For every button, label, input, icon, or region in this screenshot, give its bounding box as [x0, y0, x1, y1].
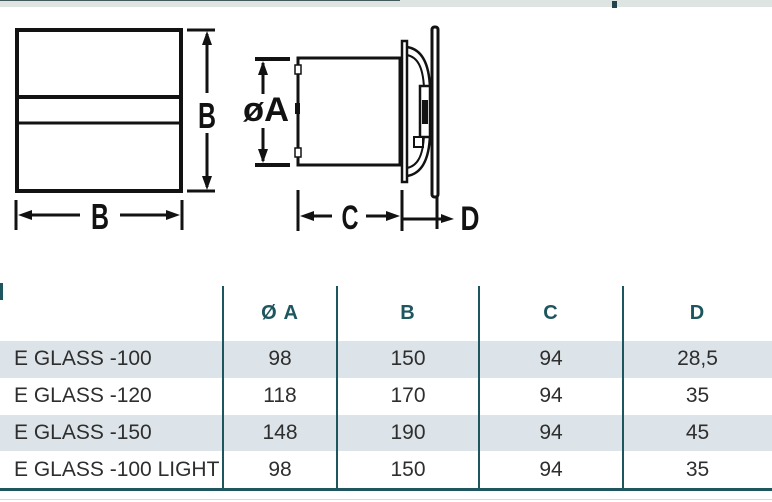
value-b: 190	[337, 421, 479, 445]
bottom-hairline	[0, 499, 772, 500]
value-diameter-a: 118	[223, 384, 337, 408]
dim-label-glass-offset: D	[461, 200, 480, 238]
value-diameter-a: 98	[223, 347, 337, 371]
value-c: 94	[479, 458, 623, 482]
table-header-c: C	[479, 302, 623, 325]
model-name: E GLASS -100	[0, 347, 223, 371]
table-row: E GLASS -120 118 170 94 35	[0, 378, 772, 415]
value-c: 94	[479, 421, 623, 445]
dimensions-table: Ø A B C D E GLASS -100 98 150 94 28,5 E …	[0, 286, 772, 491]
table-row: E GLASS -100 98 150 94 28,5	[0, 341, 772, 378]
dim-label-diameter: øA	[243, 91, 289, 129]
value-b: 150	[337, 347, 479, 371]
table-row: E GLASS -150 148 190 94 45	[0, 415, 772, 452]
value-c: 94	[479, 384, 623, 408]
value-d: 45	[623, 421, 772, 445]
dim-label-front-width: B	[91, 196, 109, 237]
table-bottom-border	[0, 488, 772, 491]
value-d: 35	[623, 458, 772, 482]
dim-label-front-height: B	[198, 95, 216, 136]
column-divider	[622, 286, 624, 488]
model-name: E GLASS -150	[0, 421, 223, 445]
value-b: 170	[337, 384, 479, 408]
front-view-drawing	[15, 30, 215, 230]
value-b: 150	[337, 458, 479, 482]
column-divider	[222, 286, 224, 488]
dimension-diagrams: B B øA C	[0, 0, 772, 280]
value-diameter-a: 148	[223, 421, 337, 445]
column-divider	[478, 286, 480, 488]
value-diameter-a: 98	[223, 458, 337, 482]
value-d: 35	[623, 384, 772, 408]
table-header-row: Ø A B C D	[0, 286, 772, 341]
model-name: E GLASS -100 LIGHT	[0, 458, 223, 482]
dim-label-depth: C	[342, 199, 359, 237]
value-d: 28,5	[623, 347, 772, 371]
table-row: E GLASS -100 LIGHT 98 150 94 35	[0, 451, 772, 488]
table-header-d: D	[623, 302, 772, 325]
value-c: 94	[479, 347, 623, 371]
table-header-b: B	[337, 302, 479, 325]
model-name: E GLASS -120	[0, 384, 223, 408]
table-header-diameter-a: Ø A	[223, 302, 337, 325]
column-divider	[336, 286, 338, 488]
